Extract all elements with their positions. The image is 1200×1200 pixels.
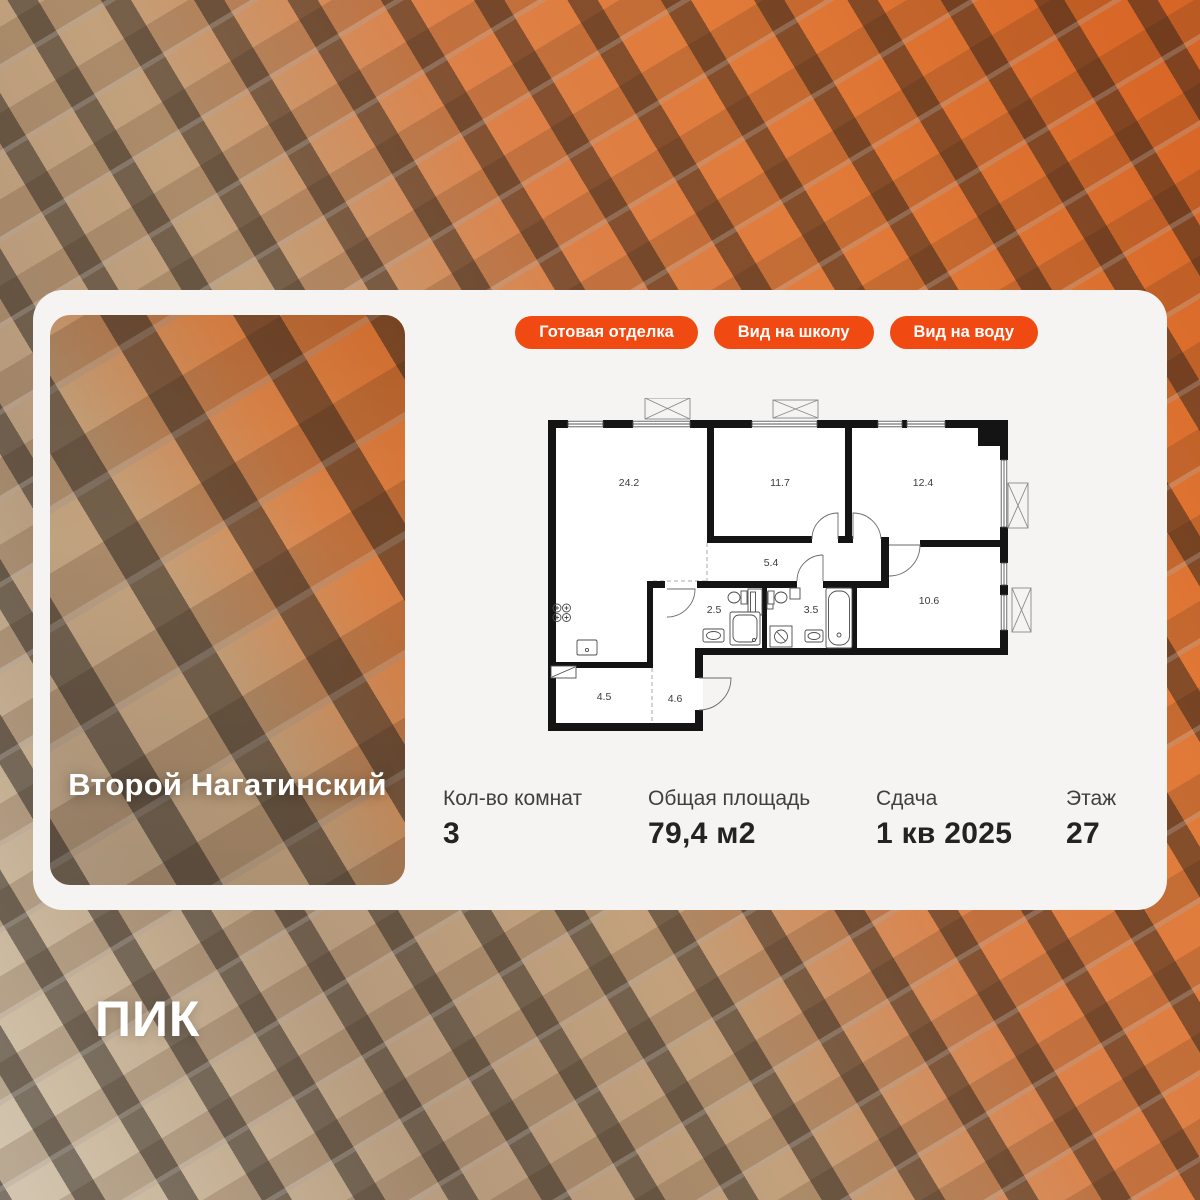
stat-floor-label: Этаж	[1066, 787, 1116, 810]
room-label-bedroom3: 10.6	[919, 595, 940, 607]
room-label-hallway: 5.4	[764, 557, 779, 569]
room-label-entry2: 4.6	[668, 693, 683, 705]
badge-water-view: Вид на воду	[890, 316, 1038, 349]
stat-area: Общая площадь 79,4 м2	[648, 787, 810, 851]
stat-area-label: Общая площадь	[648, 787, 810, 810]
room-label-living: 24.2	[619, 477, 640, 489]
ad-canvas: Второй Нагатинский Готовая отделка Вид н…	[0, 0, 1200, 1200]
stat-delivery-label: Сдача	[876, 787, 1012, 810]
stat-delivery: Сдача 1 кв 2025	[876, 787, 1012, 851]
project-title: Второй Нагатинский	[50, 767, 405, 803]
listing-card: Второй Нагатинский Готовая отделка Вид н…	[33, 290, 1167, 910]
room-label-bathroom2: 3.5	[804, 604, 819, 616]
room-label-bedroom2: 12.4	[913, 477, 934, 489]
hall-shelf	[551, 666, 576, 678]
badge-finish: Готовая отделка	[515, 316, 698, 349]
room-label-bathroom1: 2.5	[707, 604, 722, 616]
stat-floor: Этаж 27	[1066, 787, 1116, 851]
pik-logo: ПИК	[95, 990, 200, 1048]
stat-rooms-label: Кол-во комнат	[443, 787, 582, 810]
floor-plan: 24.2 11.7 12.4 5.4 2.5 3.5 10.6 4.5 4.6	[540, 398, 1040, 743]
badge-row: Готовая отделка Вид на школу Вид на воду	[515, 316, 1038, 349]
badge-school-view: Вид на школу	[714, 316, 874, 349]
floor-area	[548, 420, 1008, 731]
project-photo: Второй Нагатинский	[50, 315, 405, 885]
kitchen-sink	[577, 640, 597, 655]
room-label-bedroom1: 11.7	[770, 477, 790, 489]
stat-floor-value: 27	[1066, 817, 1116, 851]
room-label-entry1: 4.5	[597, 691, 612, 703]
stat-rooms: Кол-во комнат 3	[443, 787, 582, 851]
stat-area-value: 79,4 м2	[648, 817, 810, 851]
stat-delivery-value: 1 кв 2025	[876, 817, 1012, 851]
stat-rooms-value: 3	[443, 817, 582, 851]
